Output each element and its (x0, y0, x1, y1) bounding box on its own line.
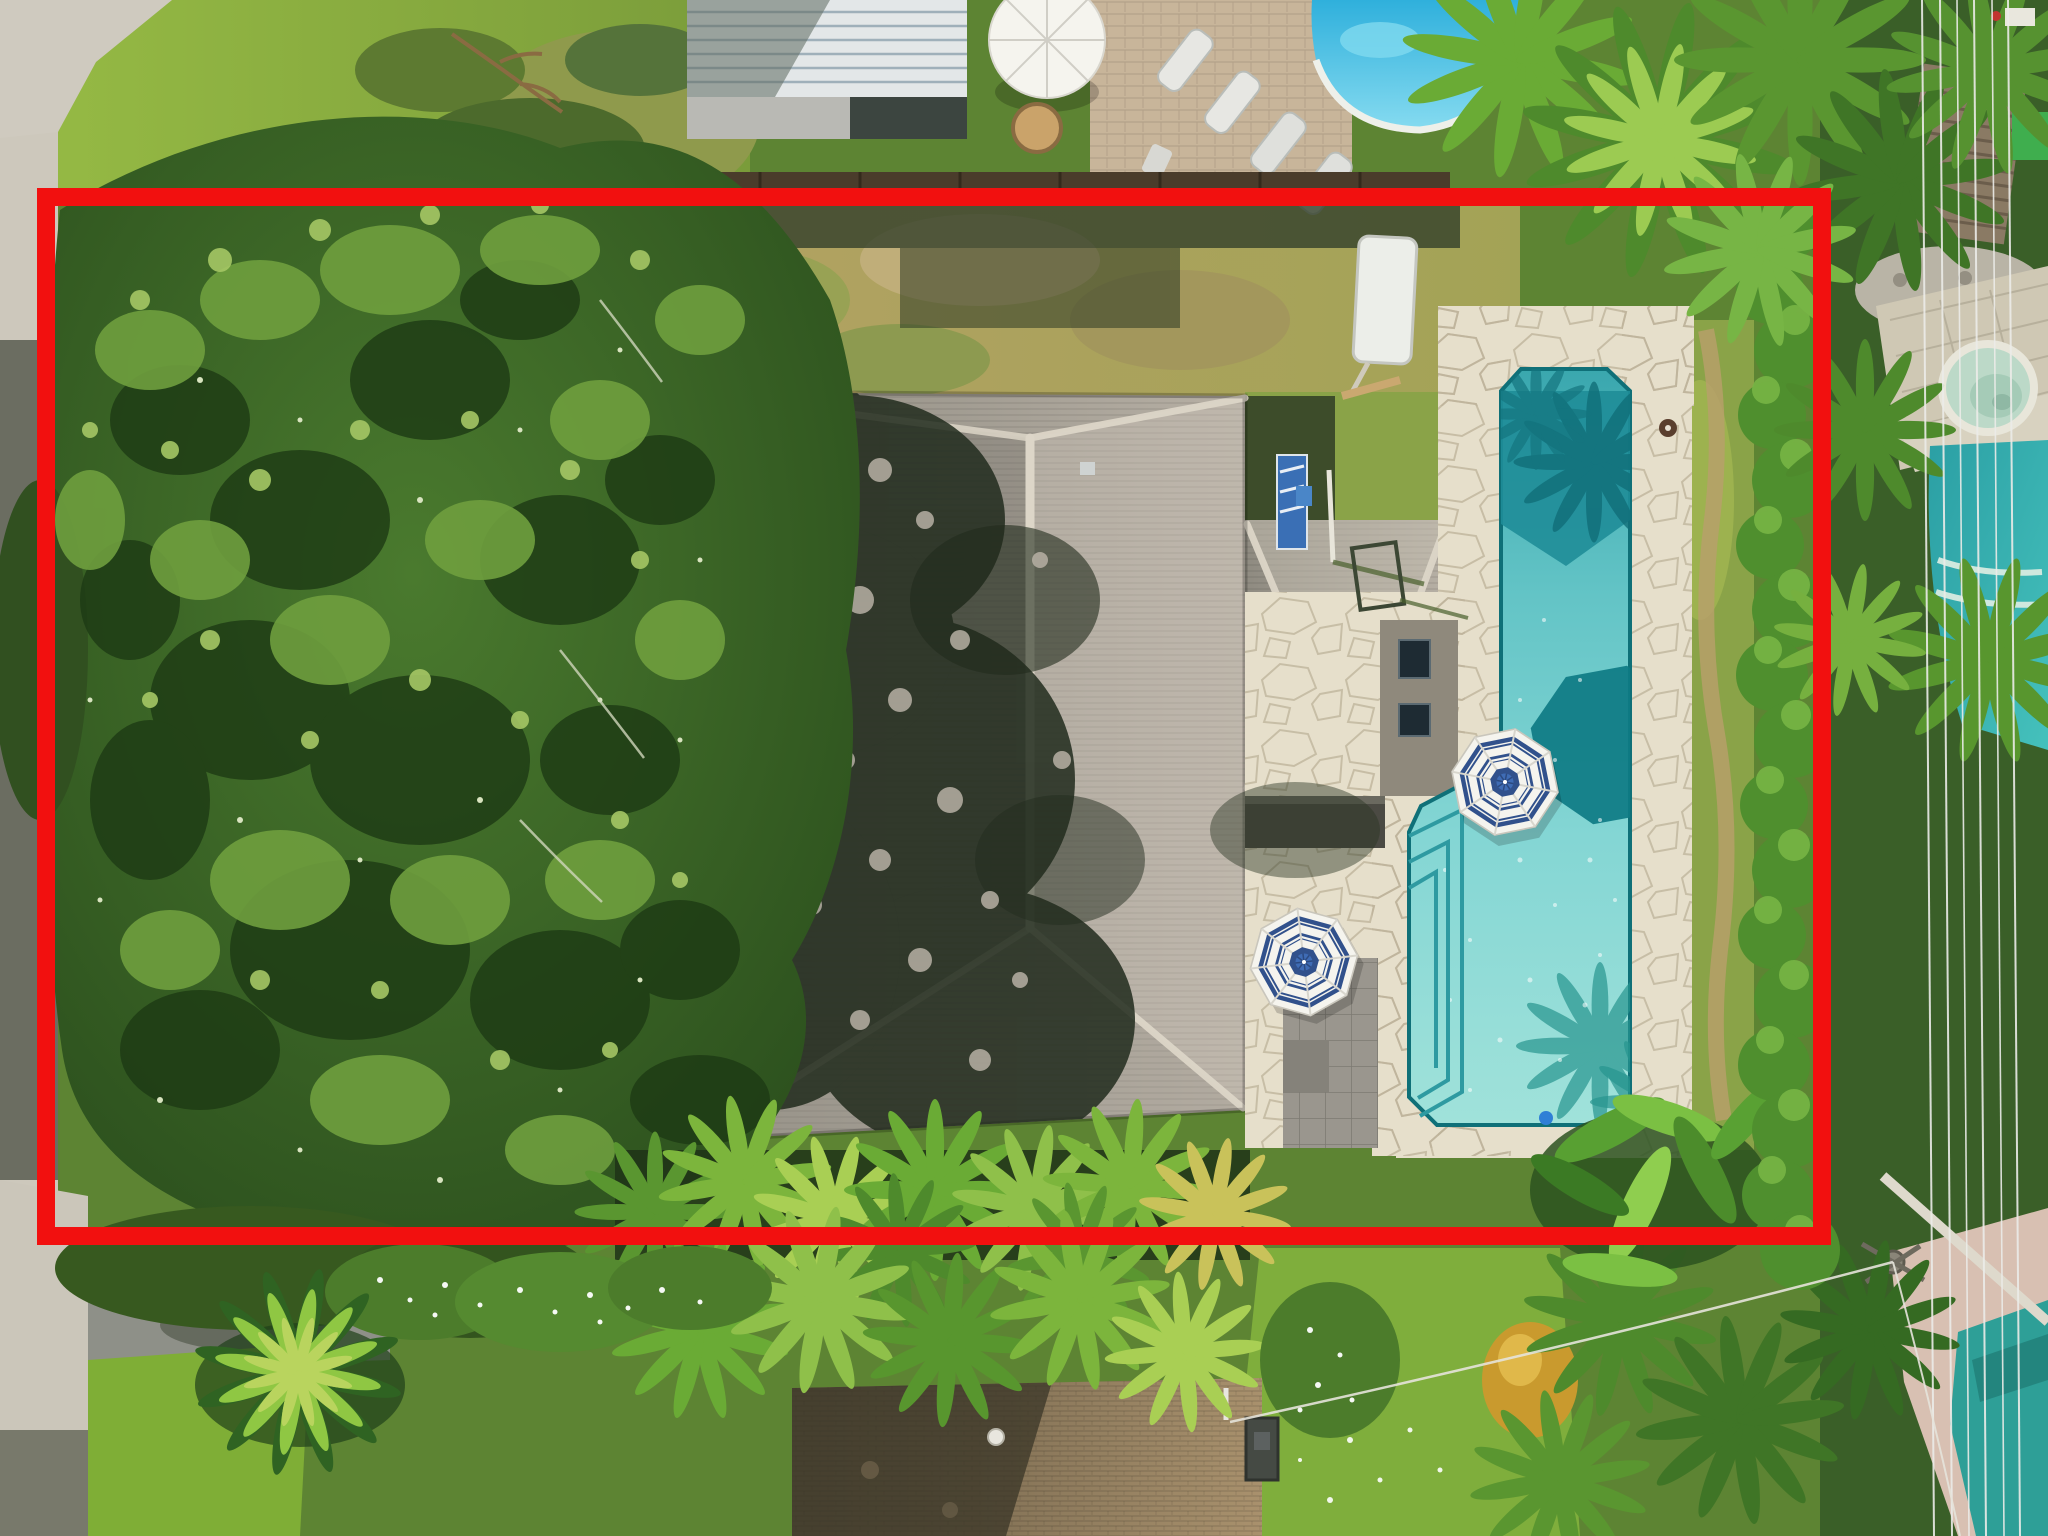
aerial-photo (0, 0, 2048, 1536)
scene-canvas (0, 0, 2048, 1536)
neighbor-structure-glimpse (2005, 8, 2035, 26)
metal-roof-shed (687, 0, 967, 139)
roof-vent (1080, 462, 1095, 475)
roof-vent-pipe (988, 1429, 1004, 1445)
dirt-trail (1706, 330, 1727, 1120)
pool-cleaner (1539, 1111, 1553, 1125)
dark-panel (1399, 704, 1430, 736)
fence-shadow (680, 206, 1460, 248)
dark-panel (1399, 640, 1430, 678)
patio-tree-shadow (1210, 782, 1380, 878)
utility-trailer (1353, 236, 1418, 365)
blue-pool-ladder (1277, 455, 1312, 549)
rattan-chair (1013, 104, 1061, 152)
